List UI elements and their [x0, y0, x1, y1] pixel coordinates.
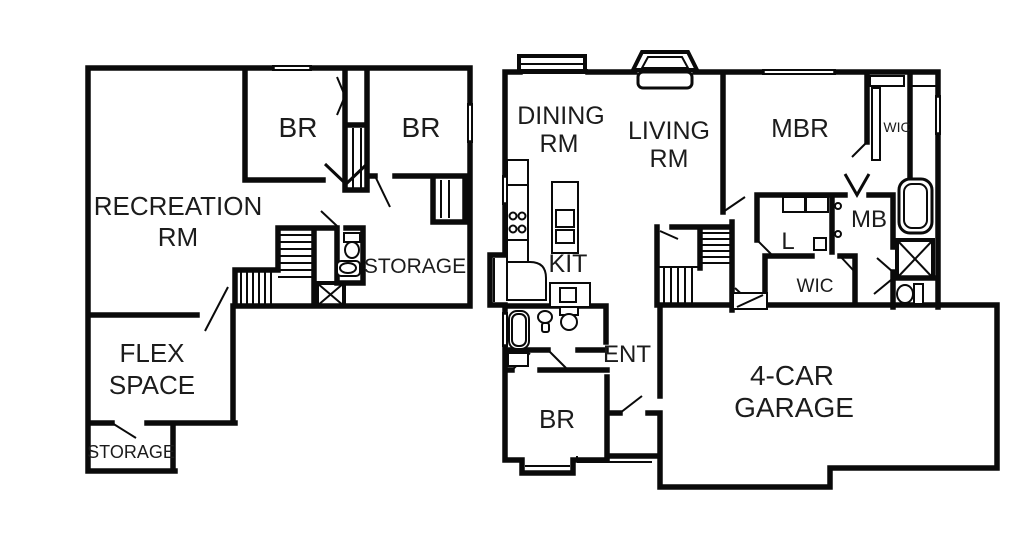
room-label-flex-space: SPACE	[109, 370, 195, 400]
room-label-garage: 4-CAR	[750, 360, 834, 391]
room-label-br-right: BR	[402, 112, 441, 143]
room-label-garage-2: GARAGE	[734, 392, 854, 423]
room-label-mbr: MBR	[771, 113, 829, 143]
room-label-wic-hall: WIC	[797, 276, 834, 297]
room-label-kit: KIT	[549, 250, 588, 278]
room-label-dining: DINING	[517, 102, 605, 130]
room-label-recreation: RECREATION	[94, 191, 263, 221]
mbr-door-arrow	[845, 174, 869, 195]
room-label-flex: FLEX	[119, 338, 184, 368]
room-label-br-main: BR	[539, 404, 575, 434]
mb-tub-icon	[899, 179, 932, 233]
fireplace-icon	[633, 52, 697, 88]
bath-sink-icon	[538, 311, 552, 332]
linen-closet	[508, 353, 528, 366]
room-label-mb: MB	[851, 206, 887, 233]
kitchen-island	[552, 182, 578, 253]
floor-plan-page: RECREATION RM BR BR STORAGE FLEX SPACE S…	[0, 0, 1024, 542]
closet-rod-icon	[870, 76, 936, 160]
room-label-living: LIVING	[628, 117, 710, 145]
kitchen-peninsula	[550, 283, 590, 307]
room-label-dining-rm: RM	[540, 130, 579, 158]
main-level-plan: DINING RM LIVING RM MBR WIC KIT MB L WIC…	[490, 52, 997, 487]
room-label-wic-master: WIC	[883, 119, 910, 135]
bath-tub-icon	[509, 311, 529, 349]
room-label-storage: STORAGE	[364, 255, 466, 278]
floor-plan-canvas: RECREATION RM BR BR STORAGE FLEX SPACE S…	[0, 0, 1024, 542]
furnace-x-icon	[317, 283, 344, 306]
lower-sink-icon	[337, 261, 360, 276]
mb-toilet-icon	[897, 284, 923, 304]
room-label-laundry: L	[781, 228, 794, 255]
garage-stoop	[733, 293, 767, 309]
room-label-recreation-rm: RM	[158, 222, 198, 252]
room-label-living-rm: RM	[650, 145, 689, 173]
mb-shower-icon	[897, 240, 933, 278]
main-stairs	[657, 231, 732, 305]
kitchen-counter	[507, 160, 546, 300]
lower-toilet-icon	[344, 233, 360, 258]
lower-level-plan: RECREATION RM BR BR STORAGE FLEX SPACE S…	[87, 66, 472, 471]
bath-toilet-icon	[560, 307, 578, 330]
room-label-storage-small: STORAGE	[87, 442, 175, 462]
room-label-br-left: BR	[279, 112, 318, 143]
room-label-ent: ENT	[603, 341, 651, 368]
